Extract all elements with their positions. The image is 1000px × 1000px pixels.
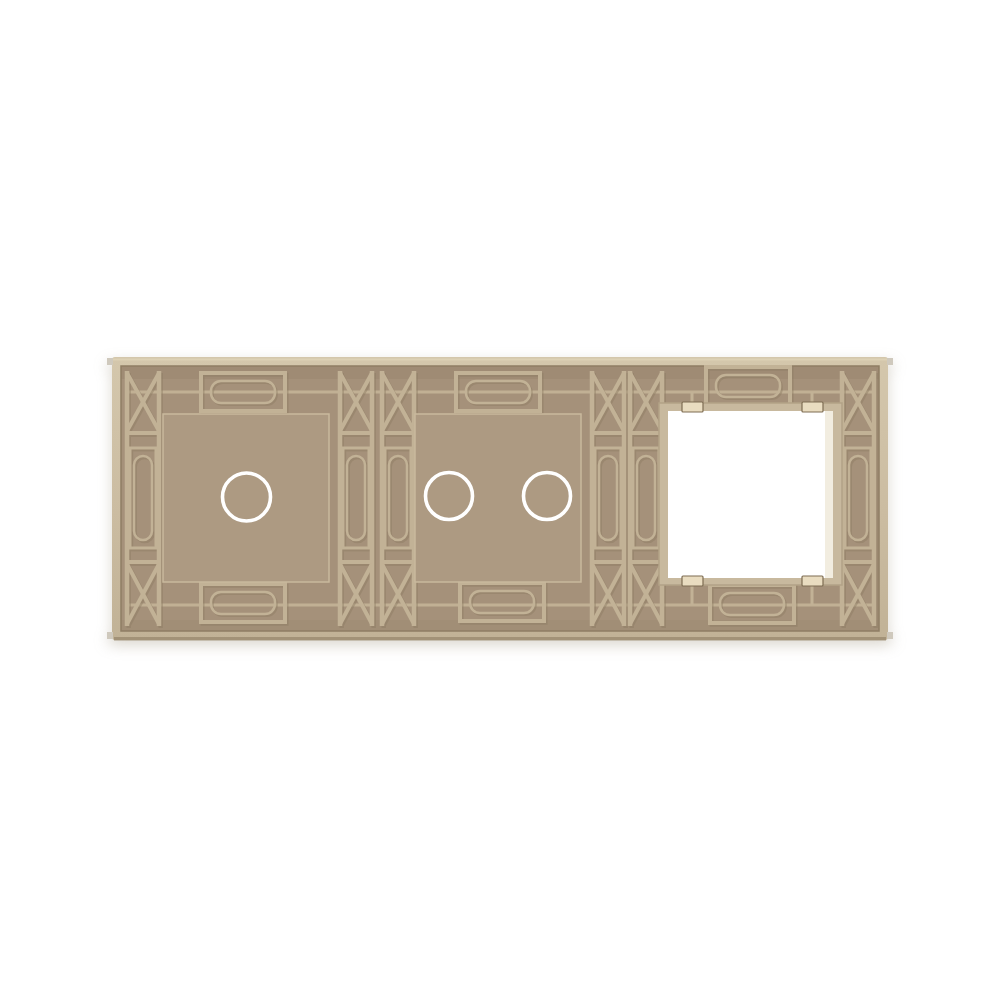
opening-right-shade: [825, 411, 833, 578]
module-opening-window: [668, 411, 833, 578]
section-module-frame: [659, 392, 842, 605]
mounting-clip-top-left: [682, 402, 703, 412]
mounting-clip-top-right: [802, 402, 823, 412]
section-switch-2gang: [415, 414, 581, 582]
switch-plate-area-1: [163, 414, 329, 582]
wall-panel: [107, 357, 893, 641]
mounting-clip-bottom-left: [682, 576, 703, 586]
product-photo: [0, 0, 1000, 1000]
mounting-clip-bottom-right: [802, 576, 823, 586]
panel-render: [0, 0, 1000, 1000]
switch-plate-area-2: [415, 414, 581, 582]
rim-top-highlight: [113, 359, 887, 361]
section-switch-1gang: [163, 414, 329, 582]
panel-bottom-shadow: [114, 637, 886, 641]
